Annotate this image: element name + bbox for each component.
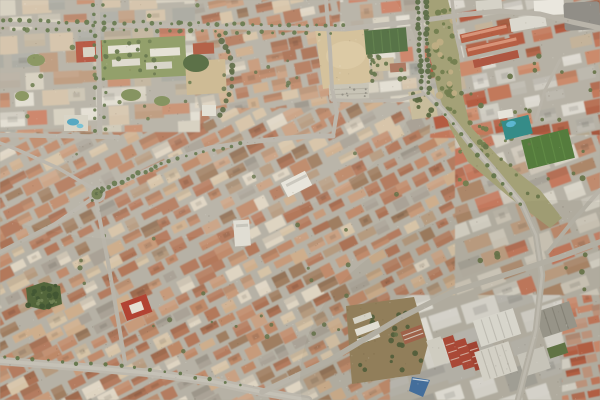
photo-grain-layer	[0, 0, 600, 400]
map-viewport	[0, 0, 600, 400]
satellite-imagery-canvas[interactable]	[0, 0, 600, 400]
